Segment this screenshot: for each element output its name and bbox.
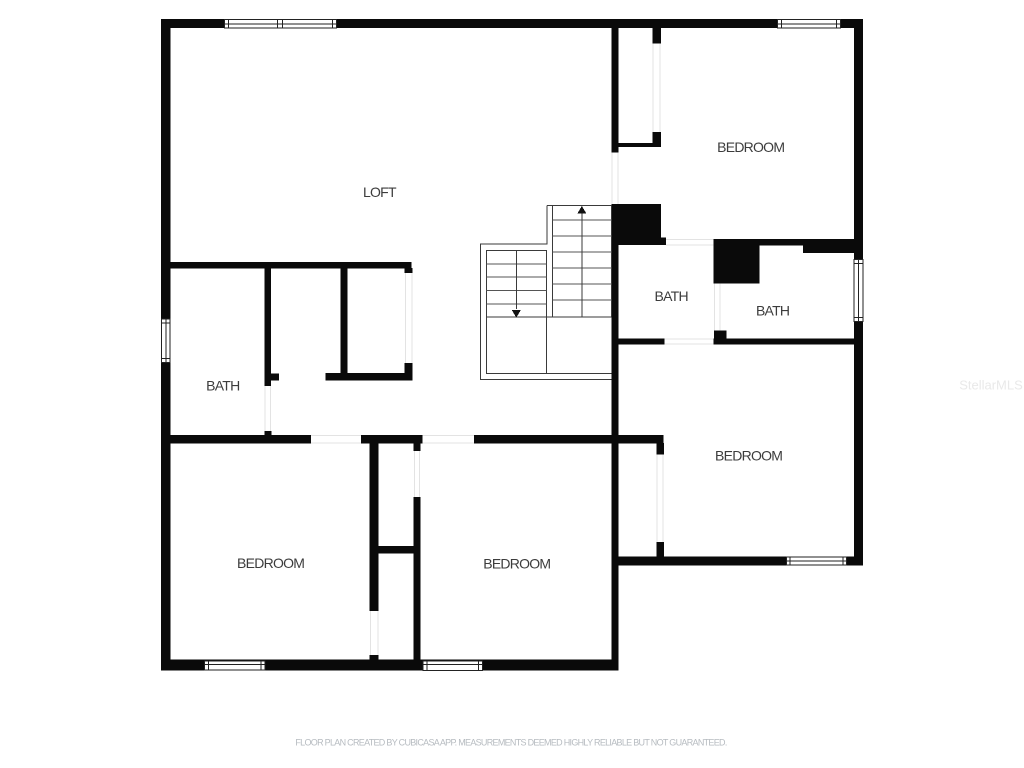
svg-text:LOFT: LOFT: [363, 184, 397, 200]
svg-text:BATH: BATH: [756, 302, 789, 318]
svg-text:BEDROOM: BEDROOM: [717, 139, 784, 155]
svg-text:BEDROOM: BEDROOM: [237, 555, 304, 571]
svg-text:BATH: BATH: [655, 288, 688, 304]
svg-text:BEDROOM: BEDROOM: [483, 556, 550, 572]
svg-text:StellarMLS: StellarMLS: [959, 378, 1023, 393]
svg-text:BEDROOM: BEDROOM: [715, 447, 782, 463]
svg-text:BATH: BATH: [206, 378, 239, 394]
svg-text:FLOOR PLAN CREATED BY CUBICASA: FLOOR PLAN CREATED BY CUBICASA APP. MEAS…: [295, 738, 726, 748]
